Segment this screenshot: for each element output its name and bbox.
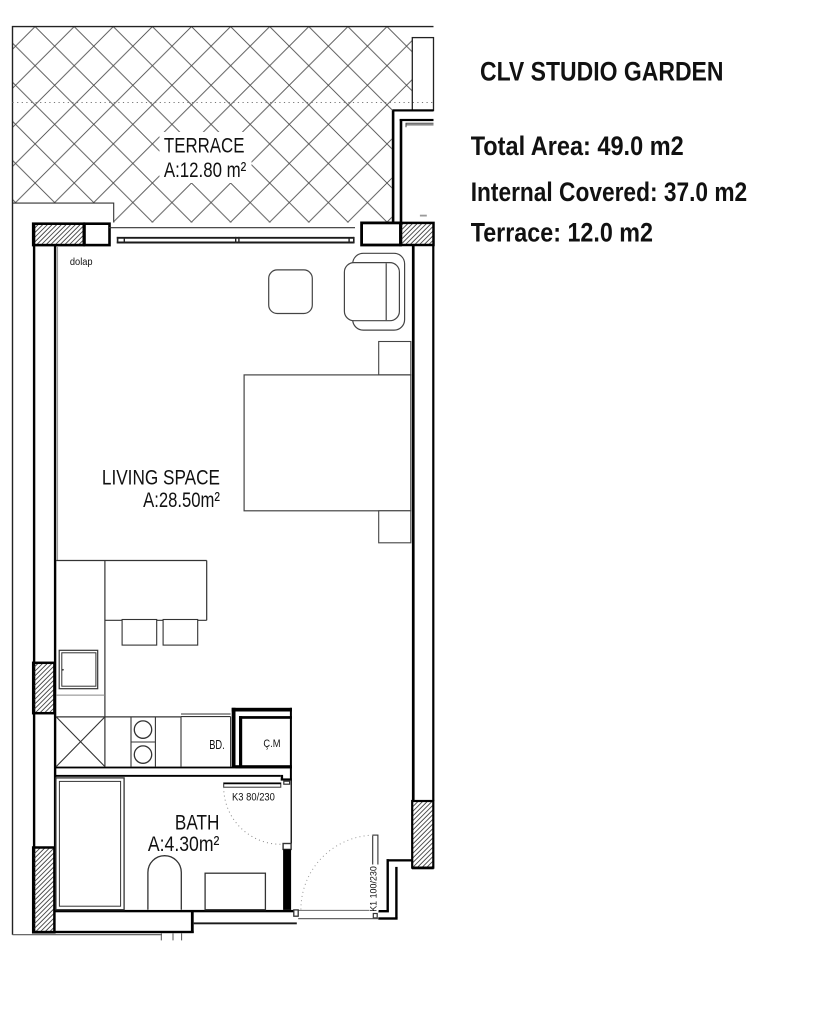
svg-text:Terrace: 12.0 m2: Terrace: 12.0 m2 xyxy=(471,218,653,248)
svg-text:BATH: BATH xyxy=(175,812,220,835)
svg-text:K1 100/230: K1 100/230 xyxy=(369,866,380,912)
svg-text:BD.: BD. xyxy=(209,738,225,752)
svg-text:Ç.M: Ç.M xyxy=(263,738,280,750)
svg-text:dolap: dolap xyxy=(70,256,93,268)
svg-text:A:12.80 m²: A:12.80 m² xyxy=(164,159,246,182)
svg-text:A:28.50m²: A:28.50m² xyxy=(143,489,220,512)
svg-text:K3 80/230: K3 80/230 xyxy=(232,792,275,804)
svg-text:LIVING SPACE: LIVING SPACE xyxy=(102,466,220,489)
svg-text:CLV STUDIO GARDEN: CLV STUDIO GARDEN xyxy=(480,56,724,86)
svg-text:Internal Covered: 37.0 m2: Internal Covered: 37.0 m2 xyxy=(471,177,748,207)
svg-text:TERRACE: TERRACE xyxy=(164,134,245,157)
svg-text:Total Area: 49.0 m2: Total Area: 49.0 m2 xyxy=(471,131,684,161)
svg-text:A:4.30m²: A:4.30m² xyxy=(148,833,220,856)
